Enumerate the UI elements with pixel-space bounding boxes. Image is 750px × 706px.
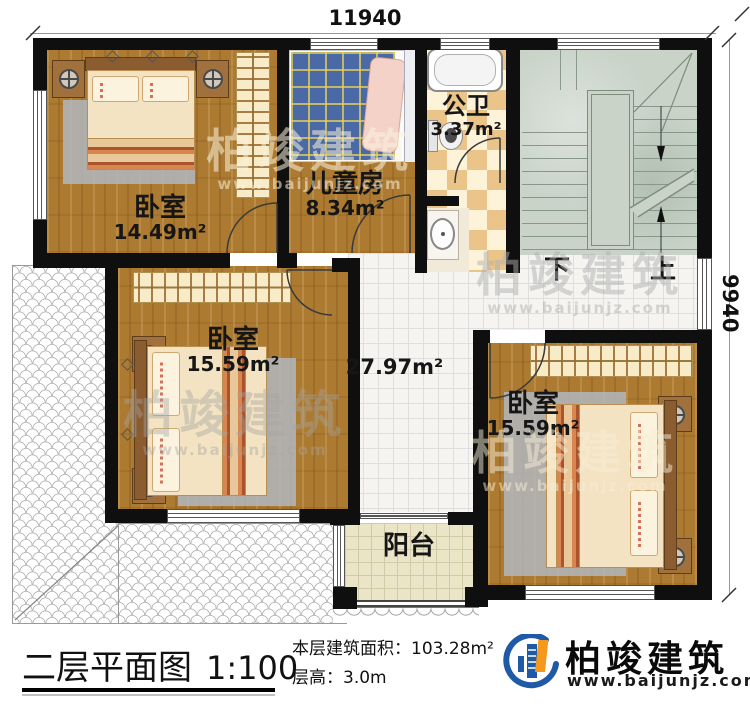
wall-segment <box>490 38 557 50</box>
wall-segment <box>330 512 360 525</box>
wall-segment <box>33 38 310 50</box>
room-area: 15.59m² <box>458 418 608 440</box>
nightstand <box>196 60 229 98</box>
bedroom-top-left-label: 卧室 14.49m² <box>85 194 235 244</box>
hall-floor-column <box>348 253 473 512</box>
wall-segment <box>105 509 167 523</box>
wall-segment <box>333 587 357 609</box>
kids-room-label: 儿童房 8.34m² <box>272 170 418 220</box>
balcony-eave <box>333 607 479 623</box>
bathtub-basin <box>434 54 496 86</box>
wall-segment <box>348 268 360 512</box>
window <box>697 258 712 330</box>
bedroom-right-label: 卧室 15.59m² <box>458 390 608 440</box>
wall-segment <box>506 38 520 273</box>
pillow <box>142 76 189 102</box>
bathroom-label: 公卫 3.37m² <box>402 94 530 139</box>
room-area: 15.59m² <box>158 354 308 376</box>
balcony-side-wall <box>333 525 345 587</box>
brand-logo-icon <box>502 634 560 694</box>
plan-scale: 1:100 <box>206 649 298 687</box>
plan-title-text: 二层平面图 <box>22 640 192 689</box>
room-area: 8.34m² <box>272 198 418 220</box>
window <box>33 90 47 220</box>
floor-area-label: 本层建筑面积： <box>292 639 411 659</box>
blanket <box>87 138 195 170</box>
window <box>310 38 378 50</box>
window <box>525 585 655 600</box>
up-label: 上 <box>640 256 686 284</box>
plan-title: 二层平面图 1:100 <box>22 640 298 689</box>
wall-segment <box>277 38 289 253</box>
title-underline <box>22 688 275 692</box>
room-name: 卧室 <box>458 390 608 418</box>
stairs-divider-line <box>560 50 561 90</box>
dimension-top-value: 11940 <box>255 6 475 30</box>
floor-area-value: 103.28m² <box>411 639 494 659</box>
wall-segment <box>448 512 480 525</box>
wall-segment <box>33 253 230 268</box>
room-area: 3.37m² <box>402 120 530 139</box>
wall-segment <box>697 330 712 600</box>
closet <box>133 272 291 303</box>
hall-area-label: 27.97m² <box>312 356 477 379</box>
nightstand <box>52 60 85 98</box>
wall-segment <box>415 196 459 206</box>
stairs-left-flight <box>522 132 588 253</box>
floor-area-line: 本层建筑面积：103.28m² <box>292 634 494 659</box>
wall-segment <box>473 330 490 343</box>
dimension-line-top <box>30 33 716 34</box>
down-label: 下 <box>534 256 580 284</box>
balcony-label: 阳台 <box>346 532 472 560</box>
wall-segment <box>378 38 440 50</box>
roof-tiles-bottom <box>118 523 347 624</box>
closet <box>530 345 693 377</box>
pillow <box>152 428 180 492</box>
stairs-right-flight <box>634 106 697 253</box>
pillow <box>92 76 139 102</box>
wall-segment <box>33 38 47 90</box>
room-name: 卧室 <box>158 326 308 354</box>
wall-segment <box>415 38 427 273</box>
stairs-down-label: 下 <box>534 256 580 284</box>
stairs-divider-line <box>576 50 577 90</box>
wall-segment <box>465 587 488 607</box>
bed-headboard <box>134 340 147 500</box>
wall-segment <box>277 253 297 268</box>
window <box>167 509 300 523</box>
wall-segment <box>655 585 712 600</box>
balcony-opening <box>360 513 448 519</box>
roof-tiles-left <box>12 265 120 624</box>
stairs-landing <box>587 90 634 250</box>
bedroom-left-label: 卧室 15.59m² <box>158 326 308 376</box>
wardrobe <box>236 52 270 198</box>
floor-height-value: 3.0m <box>343 668 387 688</box>
balcony-railing <box>345 600 473 607</box>
bed-headboard <box>85 57 196 71</box>
knob-icon <box>203 69 223 89</box>
brand-website: www.baijunjz.com <box>567 671 750 690</box>
sink-drain <box>441 232 445 236</box>
knob-icon <box>59 69 79 89</box>
wall-segment <box>105 253 118 523</box>
floor-height-line: 层高：3.0m <box>292 663 387 688</box>
wall-segment <box>697 38 712 258</box>
room-name: 卧室 <box>85 194 235 222</box>
room-area: 27.97m² <box>312 356 477 379</box>
bed-headboard <box>664 400 677 570</box>
room-name: 儿童房 <box>272 170 418 198</box>
title-underline-shadow <box>22 694 275 696</box>
room-name: 公卫 <box>402 94 530 120</box>
stairs-up-label: 上 <box>640 256 686 284</box>
wall-segment <box>545 330 697 343</box>
pillow <box>630 490 658 556</box>
room-name: 阳台 <box>346 532 472 560</box>
floor-plan-page: 11940 9940 卧室 14.49m² 儿童房 8.34m² 公卫 3.37… <box>0 0 750 706</box>
floor-height-label: 层高： <box>292 668 343 688</box>
window <box>557 38 660 50</box>
dimension-right-value: 9940 <box>718 274 742 330</box>
pillow <box>630 412 658 478</box>
window <box>440 38 490 50</box>
room-area: 14.49m² <box>85 222 235 244</box>
